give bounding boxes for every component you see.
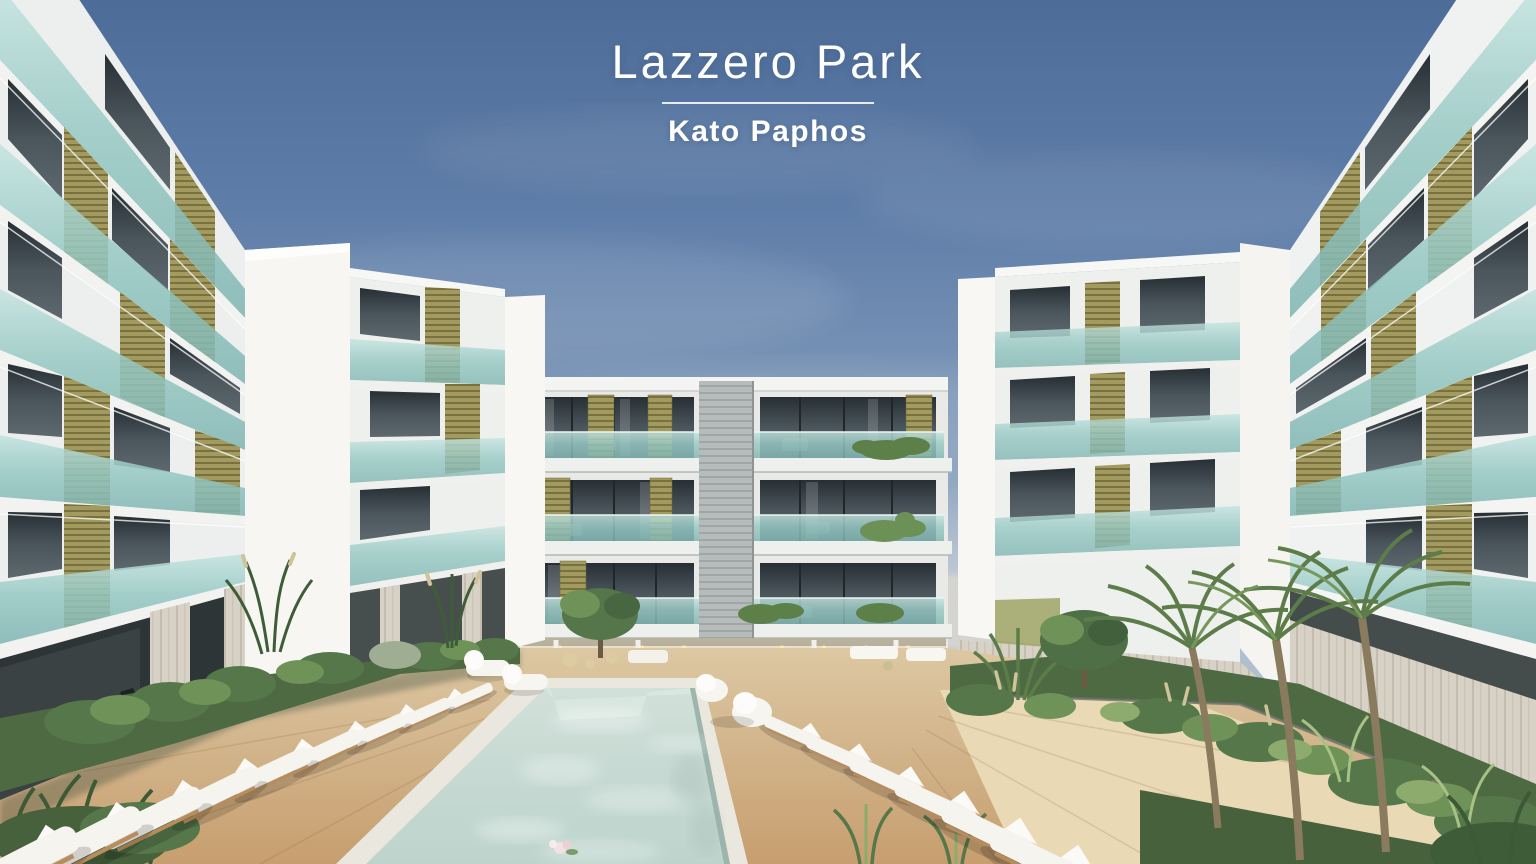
scene-svg: [0, 0, 1536, 864]
left-rear-endwall: [505, 295, 545, 650]
right-rear-endwall: [958, 277, 995, 640]
left-wing-rear: [350, 268, 545, 690]
render-image: Lazzero Park Kato Paphos: [0, 0, 1536, 864]
left-endwall: [245, 243, 350, 710]
right-wing-rear: [958, 252, 1240, 665]
center-pier: [699, 381, 753, 682]
right-endwall: [1240, 243, 1290, 710]
